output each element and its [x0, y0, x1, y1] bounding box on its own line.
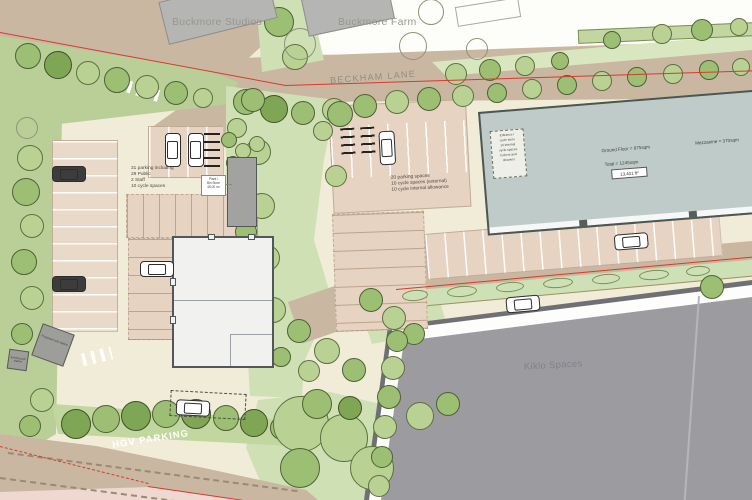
- car: [165, 133, 181, 167]
- cycle-rack: [204, 133, 220, 169]
- west-parking-note: 31 parking including 29 Public 2 Staff 1…: [131, 166, 174, 190]
- buckmore-farm-label: Buckmore Farm: [338, 16, 417, 28]
- car: [505, 295, 540, 314]
- car: [176, 399, 211, 417]
- plant-store-label: Plant / Bin Store 45.00 m²: [201, 175, 226, 196]
- buckmore-studios-label: Buckmore Studios: [172, 16, 262, 28]
- site-plan: 20 parking spaces 10 cycle spaces (exter…: [0, 0, 752, 500]
- car: [52, 276, 86, 292]
- car: [52, 166, 86, 182]
- car: [140, 261, 174, 277]
- plant-store-leader: [226, 184, 232, 185]
- car: [188, 133, 204, 167]
